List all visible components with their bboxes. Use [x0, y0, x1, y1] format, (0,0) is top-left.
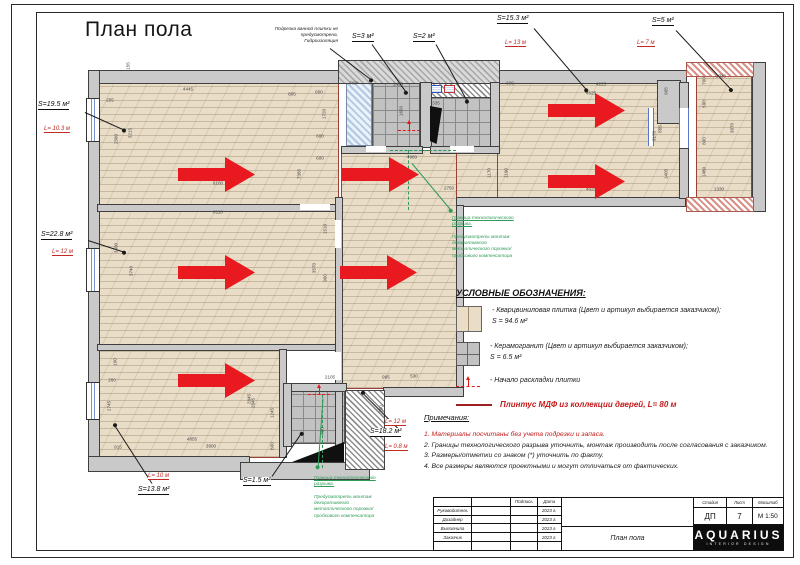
title-block-row: Руководитель 2023 г.: [434, 507, 561, 516]
legend-plinth-label: Плинтус МДФ из коллекции дверей, L= 80 м: [500, 400, 676, 409]
logo-text: AQUARIUS: [694, 529, 782, 541]
legend-header: УСЛОВНЫЕ ОБОЗНАЧЕНИЯ:: [456, 288, 768, 298]
title-block-center: План пола: [562, 498, 694, 550]
notes-header: Примечания:: [424, 413, 776, 422]
page-title: План пола: [85, 18, 192, 42]
ceramic-tile-swatch: [456, 342, 480, 366]
note-item: 1. Материалы посчитаны без учета подрезк…: [424, 430, 776, 440]
title-block-row: Выполнила 2023 г.: [434, 524, 561, 533]
title-block-signatures: Подпись Дата Руководитель 2023 г. Дизайн…: [434, 498, 562, 550]
legend: УСЛОВНЫЕ ОБОЗНАЧЕНИЯ: - Кварцвиниловая п…: [456, 288, 768, 409]
legend-item-plinth: Плинтус МДФ из коллекции дверей, L= 80 м: [456, 400, 768, 409]
company-logo: AQUARIUS INTERIOR DESIGN: [694, 525, 783, 550]
logo-subtitle: INTERIOR DESIGN: [706, 542, 770, 546]
tile-start-icon: [456, 378, 480, 390]
scale-header: Масштаб: [753, 498, 783, 507]
stage-header: Стадия: [694, 498, 727, 507]
title-block-blank-cell: [562, 498, 693, 527]
sheet-header: Лист: [727, 498, 752, 507]
note-item: 3. Размеры/отметки со знаком (*) уточнит…: [424, 451, 776, 461]
legend-item-quartz: - Кварцвиниловая плитка (Цвет и артикул …: [456, 306, 768, 332]
sheet-number: 7: [727, 508, 752, 524]
drawing-sheet: План пола: [0, 0, 800, 565]
legend-item-start: - Начало раскладки плитки: [456, 376, 768, 390]
stage-value: ДП: [694, 508, 727, 524]
title-block-right: Стадия Лист Масштаб ДП 7 М 1:50 AQUARIUS…: [694, 498, 783, 550]
drawing-name: План пола: [562, 527, 693, 550]
quartz-tile-swatch: [456, 306, 482, 332]
plinth-line-icon: [456, 404, 492, 406]
legend-start-label: - Начало раскладки плитки: [490, 376, 580, 387]
title-block-row: Подпись Дата: [434, 498, 561, 507]
scale-value: М 1:50: [753, 508, 783, 524]
bath-tile-note: Подрезка ванной плитки не предусмотрена.…: [238, 27, 338, 45]
legend-ceramic-area: S = 6.5 м²: [490, 353, 688, 364]
note-item: 2. Границы технологического разрыва уточ…: [424, 441, 776, 451]
title-block-row: Заказчик 2023 г.: [434, 533, 561, 542]
legend-item-ceramic: - Керамогранит (Цвет и артикул выбираетс…: [456, 342, 768, 366]
title-block-row: Дизайнер 2023 г.: [434, 516, 561, 525]
title-block: Подпись Дата Руководитель 2023 г. Дизайн…: [433, 497, 784, 551]
legend-quartz-label: - Кварцвиниловая плитка (Цвет и артикул …: [492, 306, 721, 317]
title-block-row: [434, 542, 561, 550]
legend-ceramic-label: - Керамогранит (Цвет и артикул выбираетс…: [490, 342, 688, 353]
notes: Примечания: 1. Материалы посчитаны без у…: [424, 413, 776, 472]
note-item: 4. Все размеры являются проектными и мог…: [424, 462, 776, 472]
legend-quartz-area: S = 94.6 м²: [492, 317, 721, 328]
